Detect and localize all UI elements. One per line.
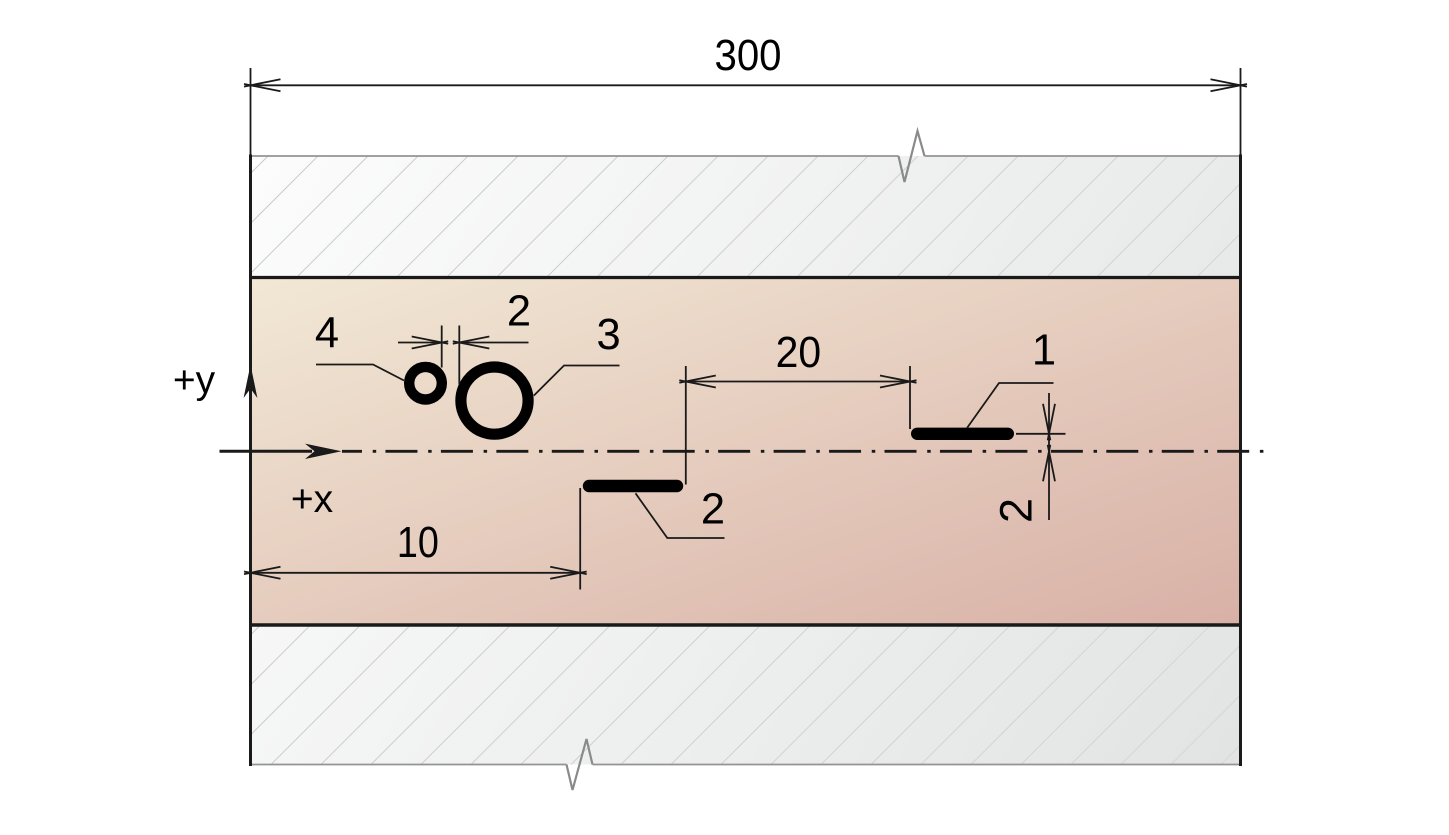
svg-text:2: 2 [507, 288, 531, 336]
svg-text:2: 2 [991, 498, 1042, 523]
svg-text:20: 20 [776, 329, 822, 377]
svg-text:2: 2 [701, 486, 725, 534]
svg-text:+x: +x [291, 478, 334, 521]
svg-text:1: 1 [1032, 327, 1056, 375]
svg-text:+y: +y [173, 359, 216, 402]
svg-text:300: 300 [715, 32, 782, 80]
svg-text:10: 10 [397, 519, 439, 567]
svg-text:4: 4 [315, 310, 339, 358]
svg-text:3: 3 [596, 311, 620, 359]
